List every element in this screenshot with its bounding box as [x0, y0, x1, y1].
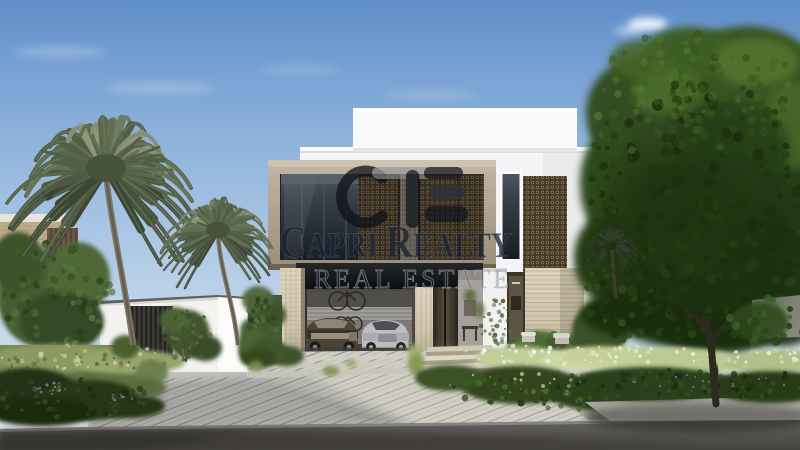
svg-text:REAL ESTATE: REAL ESTATE	[314, 264, 512, 294]
